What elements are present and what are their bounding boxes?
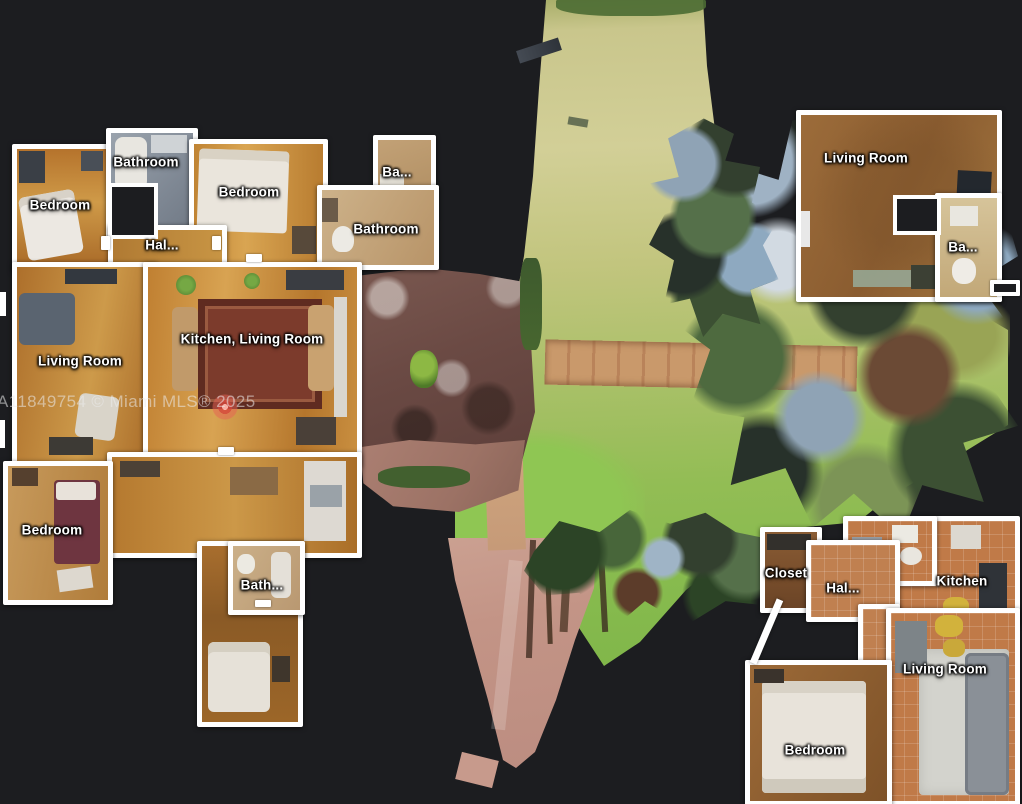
nightstand xyxy=(81,151,103,171)
door xyxy=(801,211,810,247)
room-label-lr-living[interactable]: Living Room xyxy=(903,662,987,677)
hedge-strip xyxy=(378,466,470,488)
cabinet xyxy=(49,437,93,455)
door-marker xyxy=(212,236,221,250)
door-marker xyxy=(101,236,110,250)
room-label-bedroom-lower[interactable]: Bedroom xyxy=(22,523,83,538)
chair-yellow xyxy=(943,639,965,657)
shelf xyxy=(767,534,811,550)
room-label-bathroom-top[interactable]: Bathroom xyxy=(113,155,178,170)
mls-watermark: A11849754 © Miami MLS® 2025 xyxy=(0,392,256,412)
grass-dark-fringe xyxy=(556,0,706,16)
door-marker xyxy=(218,447,234,455)
room-label-hall[interactable]: Hal... xyxy=(145,238,178,253)
bench xyxy=(57,566,94,593)
plant xyxy=(176,275,196,295)
wall-notch xyxy=(893,195,941,235)
room-label-ur-ba[interactable]: Ba... xyxy=(948,240,978,255)
door-marker xyxy=(255,600,271,607)
pillows xyxy=(56,482,96,500)
wall-stub xyxy=(990,280,1020,296)
toilet xyxy=(332,226,354,252)
driveway-fragment xyxy=(455,752,499,788)
sink xyxy=(950,206,978,226)
room-label-kitchen-living[interactable]: Kitchen, Living Room xyxy=(181,332,324,347)
stove xyxy=(951,525,981,549)
appliance xyxy=(286,270,344,290)
room-label-living[interactable]: Living Room xyxy=(38,354,122,369)
wall-notch xyxy=(108,183,158,239)
toilet xyxy=(237,554,255,574)
island xyxy=(230,467,278,495)
chair xyxy=(296,417,336,445)
plant xyxy=(244,273,260,289)
cabinet xyxy=(12,468,38,486)
cabinet xyxy=(120,461,160,477)
room-label-lr-closet[interactable]: Closet xyxy=(765,566,807,581)
wall-stub-edge xyxy=(0,420,5,448)
dresser xyxy=(19,151,45,183)
room-label-lr-hall[interactable]: Hal... xyxy=(826,581,859,596)
room-label-ba-small[interactable]: Ba... xyxy=(382,165,412,180)
room-label-bathroom-right[interactable]: Bathroom xyxy=(353,222,418,237)
chair xyxy=(272,656,290,682)
bed xyxy=(762,681,866,793)
room-kitchen-living[interactable] xyxy=(143,262,362,468)
toilet xyxy=(952,258,976,284)
vanity xyxy=(151,135,187,153)
sofa-left xyxy=(172,307,198,391)
roof-green-plant xyxy=(410,350,438,388)
stove xyxy=(310,485,342,507)
room-label-bedroom-tl[interactable]: Bedroom xyxy=(30,198,91,213)
room-lr-living[interactable] xyxy=(886,608,1020,804)
door-marker xyxy=(246,254,262,262)
console-table xyxy=(65,269,117,284)
dollhouse-floorplan-view: Bedroom Bathroom Bedroom Ba... Bathroom … xyxy=(0,0,1022,804)
room-lr-bedroom[interactable] xyxy=(745,660,892,804)
dresser xyxy=(292,226,316,254)
bed xyxy=(208,642,270,712)
room-label-ur-living[interactable]: Living Room xyxy=(824,151,908,166)
room-label-bath-lower[interactable]: Bath... xyxy=(241,578,284,593)
sofa xyxy=(19,293,75,345)
hedge-vertical xyxy=(520,258,542,350)
chair-yellow xyxy=(935,615,963,637)
sink xyxy=(900,547,922,565)
room-label-lr-kitchen[interactable]: Kitchen xyxy=(937,574,988,589)
sofa-right xyxy=(308,305,334,391)
room-label-lr-bedroom[interactable]: Bedroom xyxy=(785,743,846,758)
cabinet xyxy=(322,198,338,222)
room-label-bedroom-center[interactable]: Bedroom xyxy=(219,185,280,200)
wall-stub-edge xyxy=(0,292,6,316)
house-roof-mesh xyxy=(350,268,535,468)
cabinet xyxy=(754,669,784,683)
counter xyxy=(334,297,347,417)
